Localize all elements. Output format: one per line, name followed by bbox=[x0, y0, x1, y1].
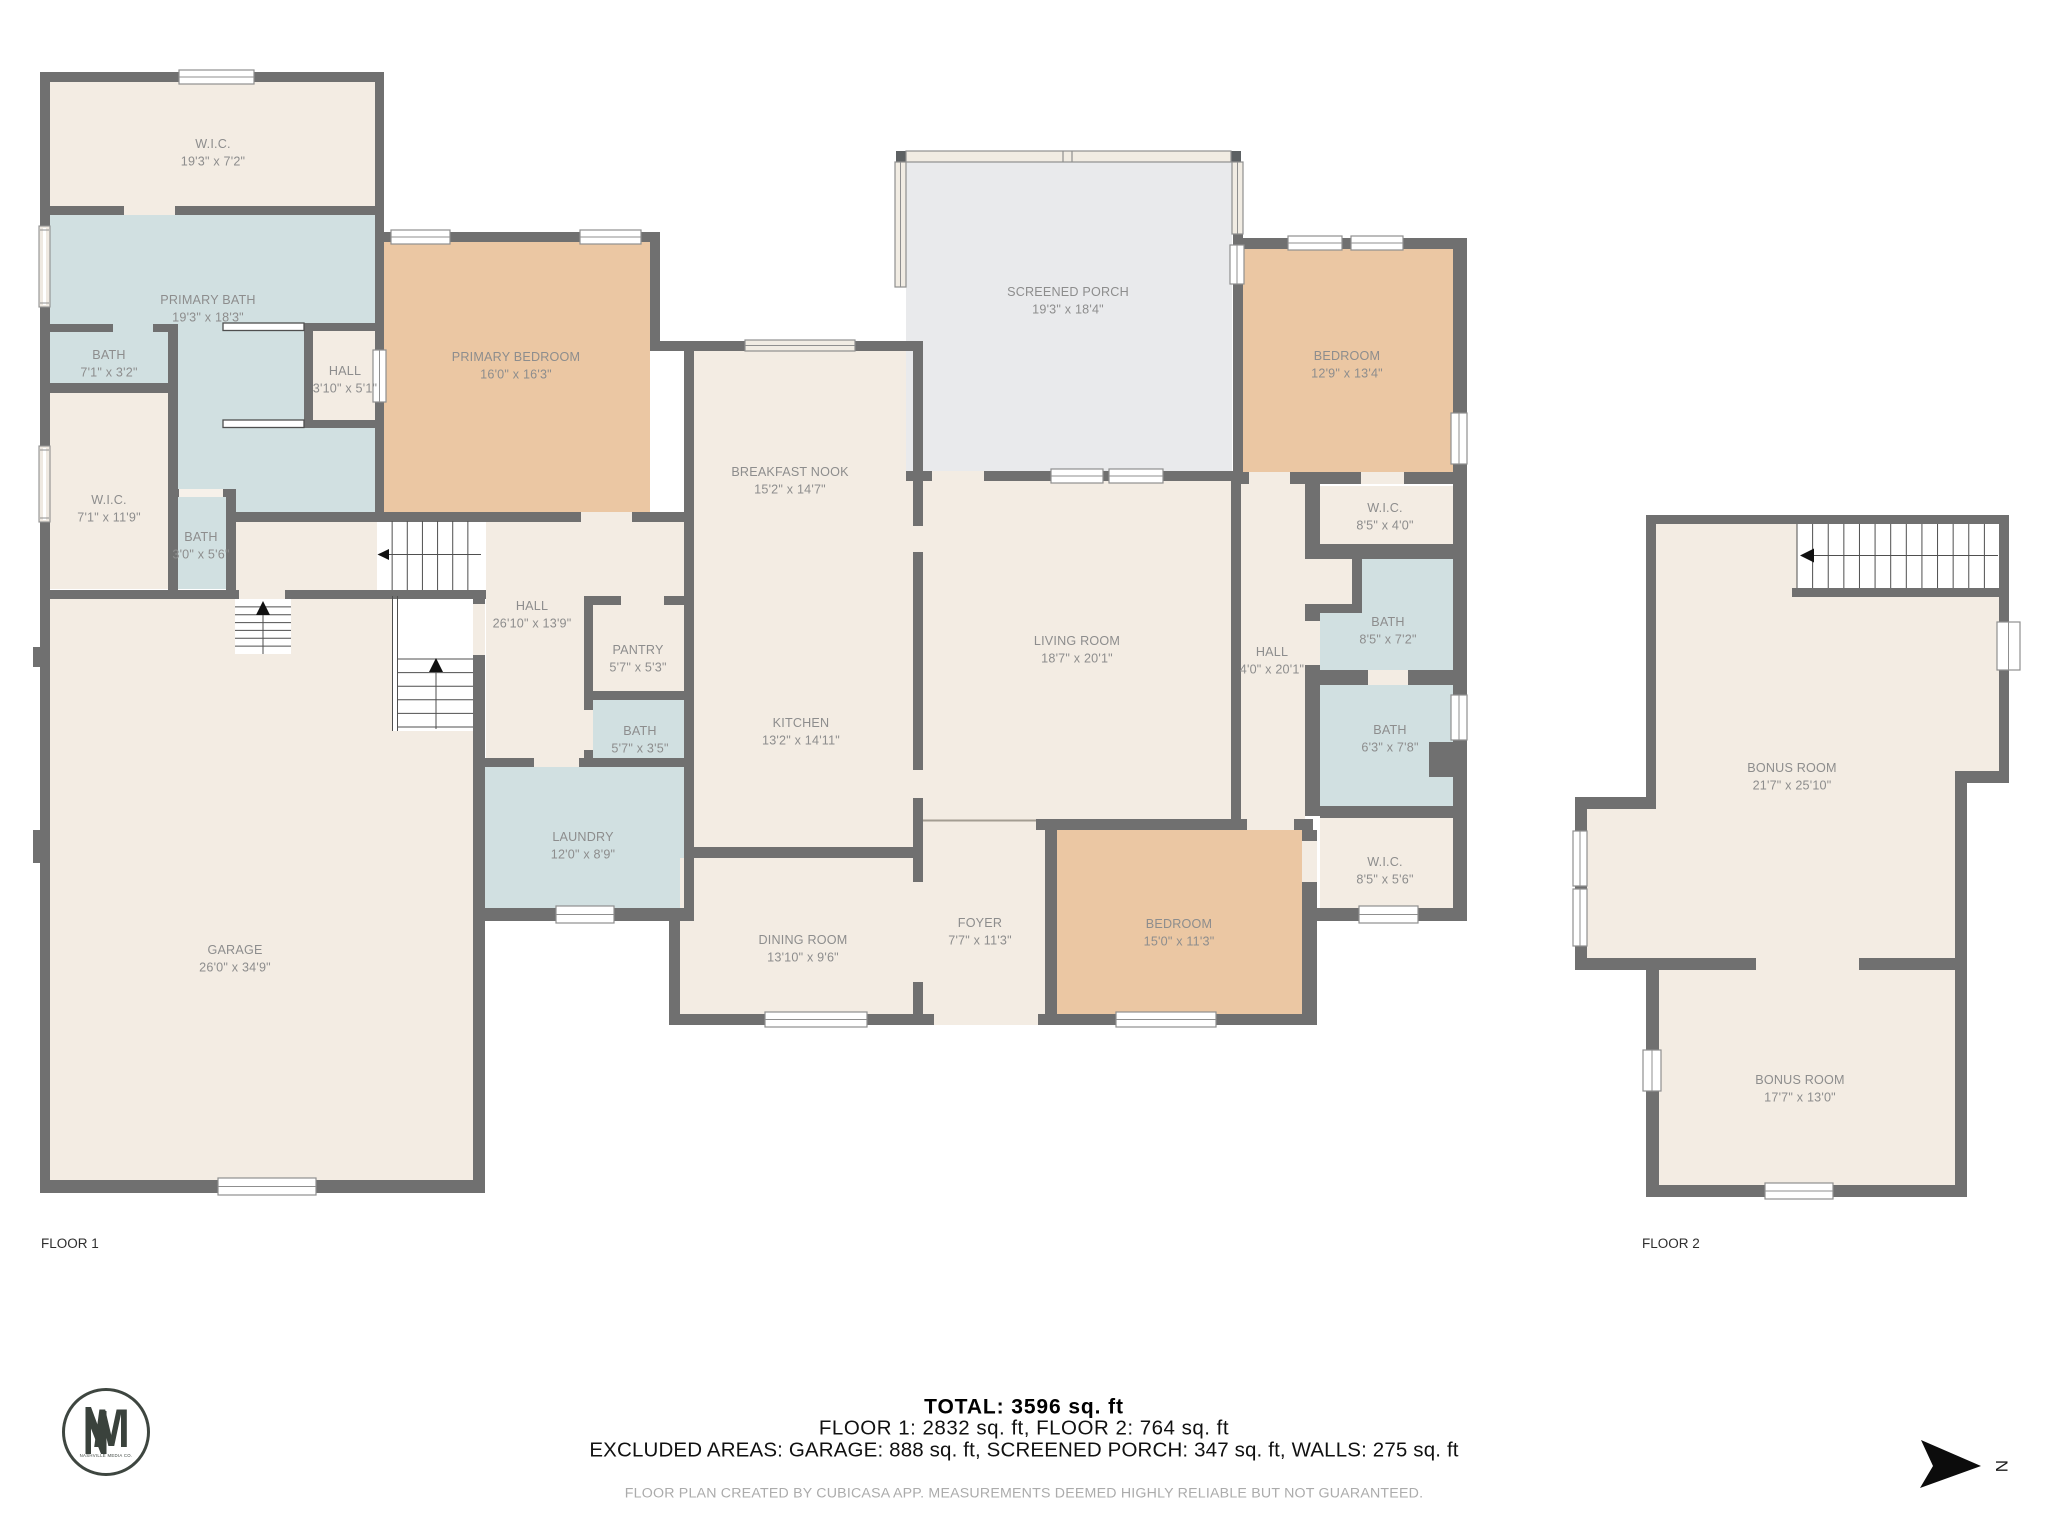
svg-text:BATH: BATH bbox=[1373, 723, 1406, 737]
svg-text:15'2" x 14'7": 15'2" x 14'7" bbox=[754, 483, 826, 497]
svg-text:17'7" x 13'0": 17'7" x 13'0" bbox=[1764, 1091, 1836, 1105]
svg-text:8'5" x 7'2": 8'5" x 7'2" bbox=[1359, 633, 1416, 647]
svg-text:FLOOR PLAN CREATED BY CUBICASA: FLOOR PLAN CREATED BY CUBICASA APP. MEAS… bbox=[625, 1486, 1423, 1502]
svg-text:3'0" x 5'6": 3'0" x 5'6" bbox=[172, 548, 229, 562]
svg-text:N: N bbox=[1992, 1460, 2011, 1472]
svg-text:BEDROOM: BEDROOM bbox=[1146, 917, 1212, 931]
svg-text:15'0" x 11'3": 15'0" x 11'3" bbox=[1144, 935, 1215, 949]
svg-text:W.I.C.: W.I.C. bbox=[195, 137, 230, 151]
svg-text:12'9" x 13'4": 12'9" x 13'4" bbox=[1311, 367, 1383, 381]
svg-text:LIVING ROOM: LIVING ROOM bbox=[1034, 634, 1120, 648]
svg-text:6'3" x 7'8": 6'3" x 7'8" bbox=[1361, 741, 1418, 755]
svg-text:TOTAL: 3596 sq. ft: TOTAL: 3596 sq. ft bbox=[924, 1396, 1124, 1419]
svg-text:BREAKFAST NOOK: BREAKFAST NOOK bbox=[731, 465, 849, 479]
svg-text:12'0" x 8'9": 12'0" x 8'9" bbox=[551, 848, 615, 862]
svg-text:BATH: BATH bbox=[92, 348, 125, 362]
svg-text:BATH: BATH bbox=[623, 724, 656, 738]
svg-text:KITCHEN: KITCHEN bbox=[773, 716, 830, 730]
svg-text:4'0" x 20'1": 4'0" x 20'1" bbox=[1240, 663, 1304, 677]
svg-text:BATH: BATH bbox=[1371, 615, 1404, 629]
svg-text:EXCLUDED AREAS: GARAGE: 888 sq: EXCLUDED AREAS: GARAGE: 888 sq. ft, SCRE… bbox=[589, 1439, 1458, 1462]
svg-text:21'7" x 25'10": 21'7" x 25'10" bbox=[1753, 779, 1832, 793]
svg-text:FLOOR 2: FLOOR 2 bbox=[1642, 1236, 1700, 1251]
svg-text:HALL: HALL bbox=[1256, 645, 1288, 659]
svg-text:13'10" x 9'6": 13'10" x 9'6" bbox=[767, 951, 839, 965]
svg-text:7'7" x 11'3": 7'7" x 11'3" bbox=[948, 934, 1012, 948]
svg-text:SCREENED PORCH: SCREENED PORCH bbox=[1007, 285, 1129, 299]
svg-text:19'3" x 7'2": 19'3" x 7'2" bbox=[181, 155, 245, 169]
svg-text:DINING ROOM: DINING ROOM bbox=[759, 933, 848, 947]
svg-text:NASHVILLE MEDIA CO.: NASHVILLE MEDIA CO. bbox=[80, 1453, 133, 1458]
svg-text:W.I.C.: W.I.C. bbox=[1367, 855, 1402, 869]
svg-text:BONUS ROOM: BONUS ROOM bbox=[1755, 1073, 1844, 1087]
svg-text:5'7" x 5'3": 5'7" x 5'3" bbox=[609, 661, 666, 675]
svg-text:FLOOR 1: 2832 sq. ft, FLOOR 2:: FLOOR 1: 2832 sq. ft, FLOOR 2: 764 sq. f… bbox=[819, 1417, 1229, 1440]
svg-text:19'3" x 18'4": 19'3" x 18'4" bbox=[1032, 303, 1104, 317]
svg-text:PANTRY: PANTRY bbox=[612, 643, 664, 657]
svg-text:FOYER: FOYER bbox=[958, 916, 1002, 930]
svg-text:7'1" x 11'9": 7'1" x 11'9" bbox=[77, 511, 141, 525]
svg-text:19'3" x 18'3": 19'3" x 18'3" bbox=[172, 311, 244, 325]
svg-text:16'0" x 16'3": 16'0" x 16'3" bbox=[480, 368, 552, 382]
svg-text:BATH: BATH bbox=[184, 530, 217, 544]
svg-text:3'10" x 5'1": 3'10" x 5'1" bbox=[313, 382, 377, 396]
svg-text:PRIMARY BATH: PRIMARY BATH bbox=[160, 293, 255, 307]
svg-text:W.I.C.: W.I.C. bbox=[91, 493, 126, 507]
svg-text:7'1" x 3'2": 7'1" x 3'2" bbox=[80, 366, 137, 380]
svg-text:8'5" x 4'0": 8'5" x 4'0" bbox=[1356, 519, 1413, 533]
svg-text:BONUS ROOM: BONUS ROOM bbox=[1747, 761, 1836, 775]
svg-text:W.I.C.: W.I.C. bbox=[1367, 501, 1402, 515]
svg-text:LAUNDRY: LAUNDRY bbox=[552, 830, 614, 844]
svg-text:26'10" x 13'9": 26'10" x 13'9" bbox=[493, 617, 572, 631]
svg-text:18'7" x 20'1": 18'7" x 20'1" bbox=[1041, 652, 1113, 666]
svg-text:8'5" x 5'6": 8'5" x 5'6" bbox=[1356, 873, 1413, 887]
svg-text:BEDROOM: BEDROOM bbox=[1314, 349, 1380, 363]
svg-text:26'0" x 34'9": 26'0" x 34'9" bbox=[199, 961, 271, 975]
svg-text:HALL: HALL bbox=[516, 599, 548, 613]
svg-text:PRIMARY BEDROOM: PRIMARY BEDROOM bbox=[452, 350, 581, 364]
svg-text:GARAGE: GARAGE bbox=[207, 943, 262, 957]
svg-text:HALL: HALL bbox=[329, 364, 361, 378]
svg-text:FLOOR 1: FLOOR 1 bbox=[41, 1236, 99, 1251]
svg-text:13'2" x 14'11": 13'2" x 14'11" bbox=[762, 734, 840, 748]
svg-text:5'7" x 3'5": 5'7" x 3'5" bbox=[611, 742, 668, 756]
